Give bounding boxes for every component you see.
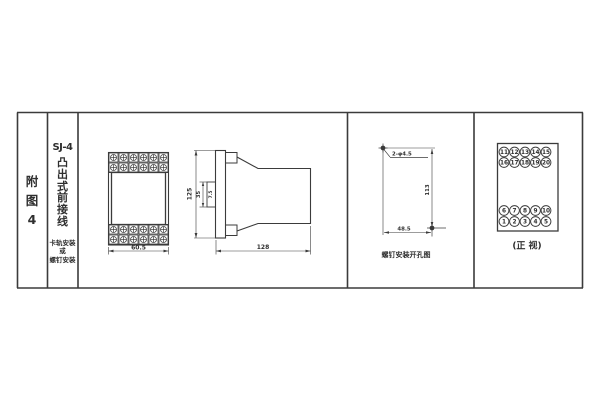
terminal-number: 10 <box>542 209 550 215</box>
front-view-caption: (正 视) <box>512 240 541 252</box>
drawing-page: 附 图 4 SJ-4 凸 出 式 前 接 线 卡轨安装 或 螺钉安装 <box>0 0 600 400</box>
terminal-number: 17 <box>510 161 518 167</box>
terminal-cover-top <box>226 153 238 164</box>
terminal-number: 5 <box>544 220 548 226</box>
terminal-number: 9 <box>533 209 537 215</box>
terminal-number: 4 <box>533 220 537 226</box>
terminal-number: 15 <box>542 150 550 156</box>
terminal-number: 8 <box>523 209 527 215</box>
terminal-number: 19 <box>531 161 539 167</box>
terminal-number: 7 <box>512 209 516 215</box>
depth-dimension-label: 128 <box>257 244 270 251</box>
holes-label: 2-φ4.5 <box>392 152 412 158</box>
terminal-number: 2 <box>512 220 516 226</box>
terminal-number: 16 <box>500 161 508 167</box>
terminal-number: 12 <box>510 150 518 156</box>
relay-body-outline <box>237 157 311 231</box>
terminal-number: 13 <box>521 150 529 156</box>
width-dimension-label: 60.5 <box>131 245 146 252</box>
rail-depth-dimension-label: 7.5 <box>208 191 214 199</box>
hole-height-dimension-label: 113 <box>425 184 431 196</box>
terminal-number: 20 <box>542 161 550 167</box>
relay-case-front <box>112 173 166 225</box>
hole-width-dimension-label: 48.5 <box>397 227 411 233</box>
rail-width-dimension-label: 35 <box>196 191 202 199</box>
front-plate <box>216 151 226 239</box>
height-dimension-label: 125 <box>187 188 194 201</box>
terminal-number: 11 <box>500 150 508 156</box>
terminal-number: 3 <box>523 220 527 226</box>
hole-leader-line <box>384 149 391 157</box>
terminal-number: 18 <box>521 161 529 167</box>
relay-side-view: 125 35 7.5 128 <box>187 151 311 255</box>
drill-hole-diagram: 2-φ4.5 113 48.5 螺钉安装开孔图 <box>379 144 447 260</box>
terminal-cover-bottom <box>226 225 238 236</box>
technical-drawing: 60.5 125 35 <box>0 0 600 400</box>
hole-height-dimension <box>431 149 434 227</box>
drill-diagram-caption: 螺钉安装开孔图 <box>382 250 431 259</box>
terminal-number: 14 <box>531 150 539 156</box>
terminal-number: 6 <box>502 209 506 215</box>
relay-front-view: 60.5 <box>109 153 169 255</box>
terminal-number: 1 <box>502 220 506 226</box>
terminal-front-view: 11 12 13 14 15 16 17 18 19 20 6 7 8 9 10… <box>498 144 559 252</box>
